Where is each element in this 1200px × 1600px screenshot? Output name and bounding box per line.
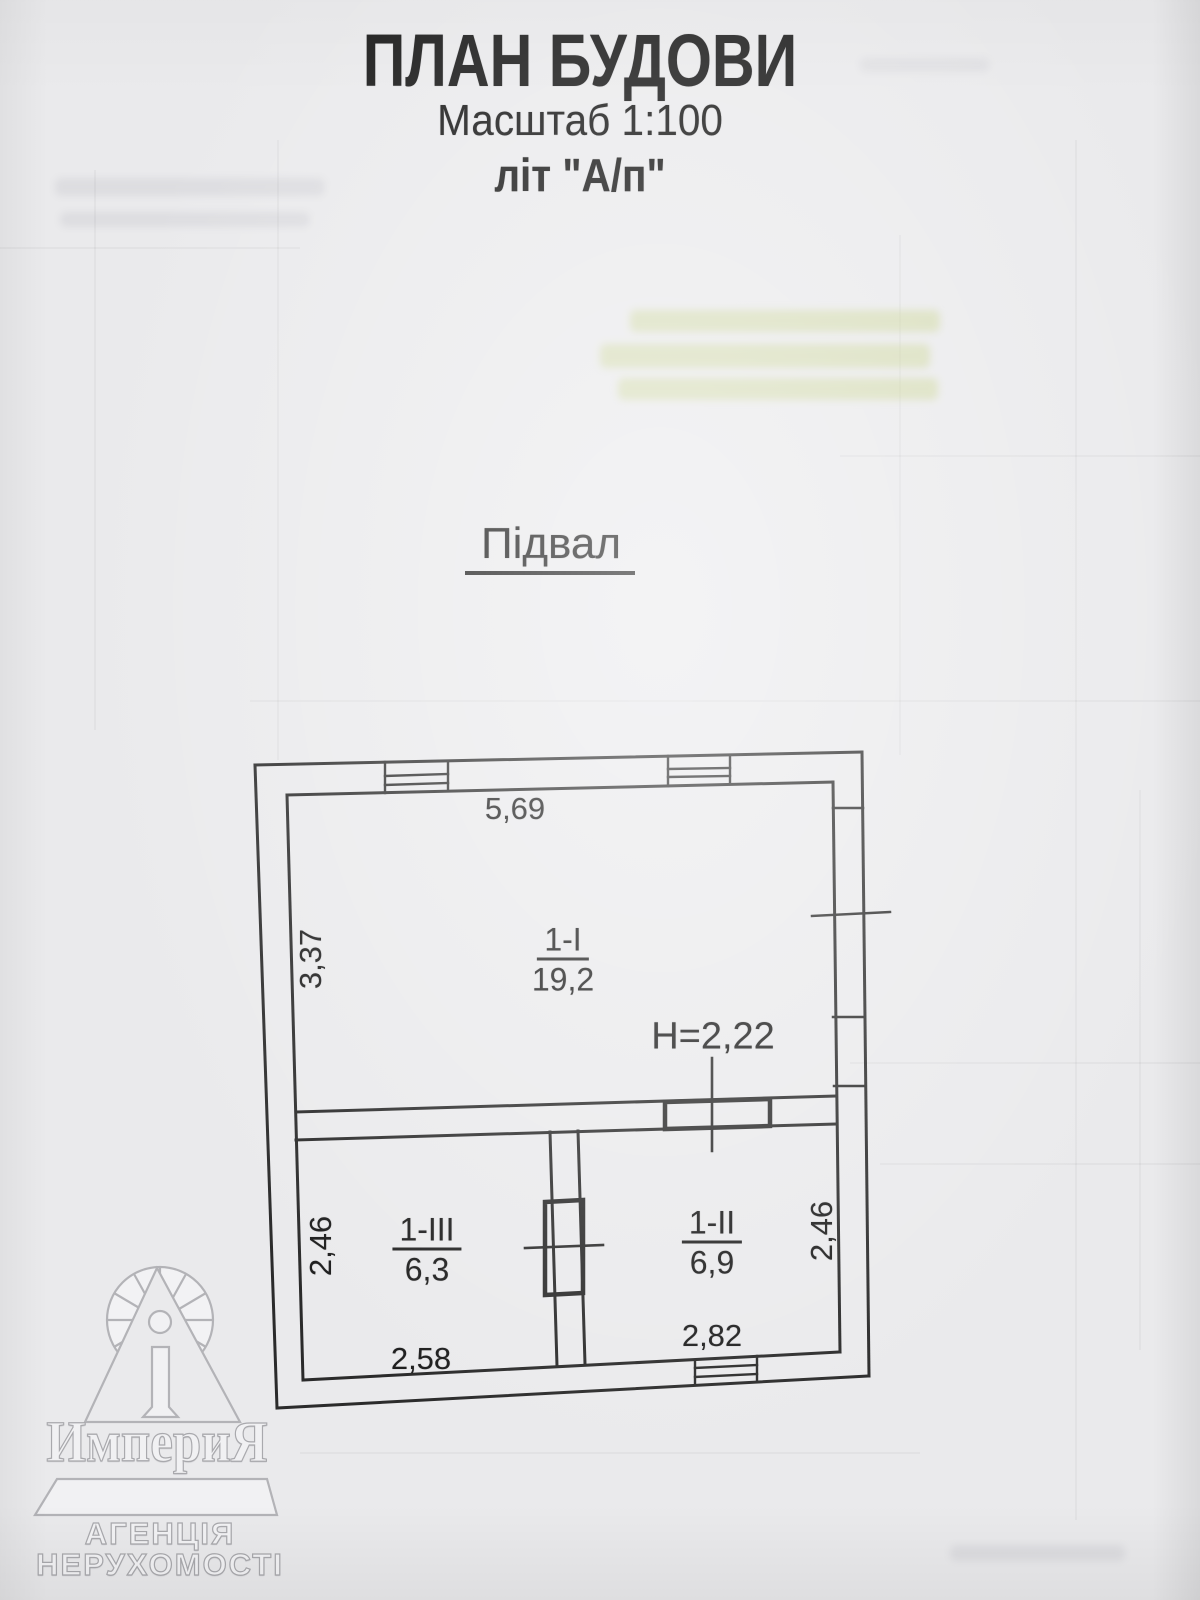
floor-plan-drawing — [0, 0, 1200, 1600]
dim-left-lower: 2,46 — [303, 1216, 339, 1276]
room-number: 1-II — [682, 1206, 742, 1244]
doorway-rooms23-opening — [525, 1200, 603, 1295]
dim-bottom-left: 2,58 — [391, 1341, 451, 1377]
dim-top-width: 5,69 — [485, 791, 545, 827]
room-area: 6,3 — [405, 1251, 449, 1288]
ceiling-height-note: Н=2,22 — [651, 1016, 775, 1059]
right-wall-marks — [812, 808, 890, 1086]
interior-wall-vertical — [550, 1131, 585, 1366]
outer-walls — [255, 752, 869, 1408]
window-top-right — [668, 755, 730, 786]
dim-bottom-right: 2,82 — [682, 1318, 742, 1354]
scanned-floor-plan-page: ПЛАН БУДОВИ Масштаб 1:100 літ "А/п" Підв… — [0, 0, 1200, 1600]
room-1-I-label: 1-I 19,2 — [532, 923, 594, 998]
room-1-III-label: 1-III 6,3 — [392, 1213, 461, 1288]
window-top-left — [385, 761, 448, 793]
room-area: 6,9 — [690, 1244, 734, 1281]
doorway-room1-opening — [665, 1058, 770, 1151]
dim-right-lower: 2,46 — [804, 1201, 840, 1261]
room-number: 1-I — [537, 923, 588, 961]
room-number: 1-III — [392, 1213, 461, 1251]
dim-left-upper: 3,37 — [293, 929, 329, 989]
room-area: 19,2 — [532, 961, 594, 998]
room-1-II-label: 1-II 6,9 — [682, 1206, 742, 1281]
interior-wall-horizontal — [296, 1096, 835, 1140]
